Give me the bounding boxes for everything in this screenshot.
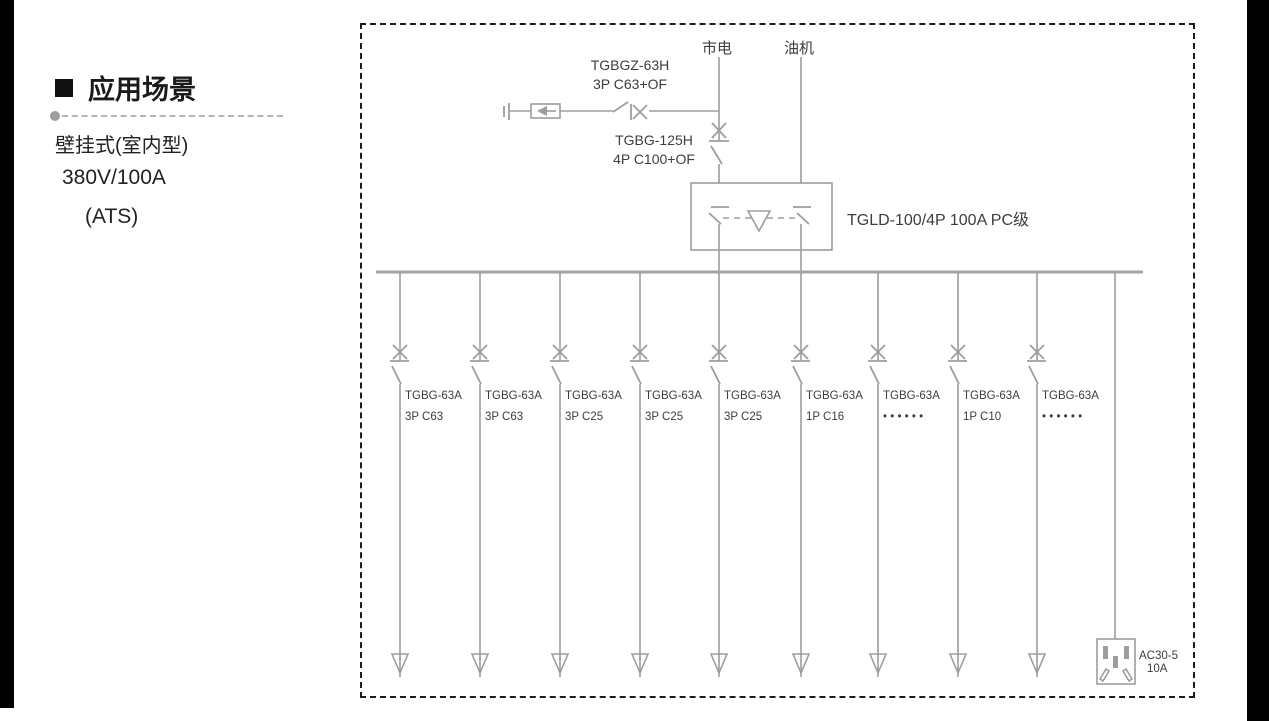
rating-text: 380V/100A [62, 166, 166, 190]
mount-type-text: 壁挂式(室内型) [55, 129, 188, 158]
section-title: 应用场景 [88, 68, 196, 107]
sidebar: 应用场景 壁挂式(室内型) 380V/100A (ATS) [0, 0, 340, 721]
right-black-bar [1247, 0, 1269, 721]
ats-text: (ATS) [85, 205, 138, 229]
page: 应用场景 壁挂式(室内型) 380V/100A (ATS) [0, 0, 1269, 721]
separator-dot-icon [50, 111, 60, 121]
square-bullet-icon [55, 79, 73, 97]
diagram-frame [360, 23, 1195, 698]
dashed-separator [50, 110, 283, 122]
section-heading: 应用场景 [55, 68, 196, 107]
